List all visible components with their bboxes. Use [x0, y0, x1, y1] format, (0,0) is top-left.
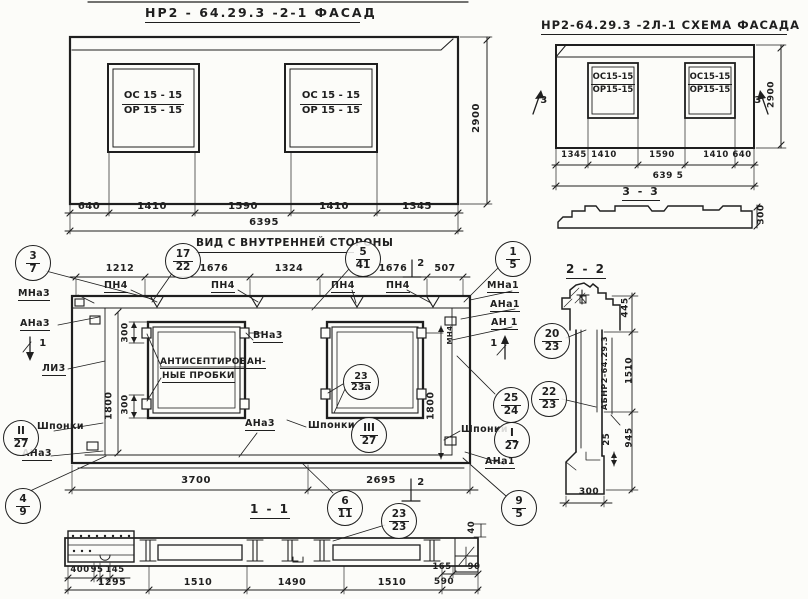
window-type-bottom: ОР 15 - 15 — [302, 105, 360, 118]
dim-945: 945 — [626, 418, 635, 458]
mark-pn4: ПН4 — [386, 281, 410, 293]
dim-1510: 1510 — [180, 578, 216, 588]
mark-pn4: ПН4 — [211, 281, 235, 293]
facade-title: НР2 - 64.29.3 -2-1 ФАСАД — [145, 6, 360, 23]
facade-dim: 1410 — [132, 202, 172, 212]
drawing-sheet: НР2 - 64.29.3 -2-1 ФАСАД ОС 15 - 15 ОР 1… — [0, 0, 808, 599]
schema-dim: 1590 — [646, 151, 678, 160]
callout-top: 22 — [539, 387, 560, 399]
schema-dim-height: 2900 — [768, 73, 777, 117]
interior-dim-bottom: 2695 — [361, 476, 401, 486]
callout-bottom: 11 — [338, 509, 353, 520]
dim-1800-right: 1800 — [426, 384, 436, 428]
callout-bottom: 41 — [356, 260, 371, 271]
mark-mna1: МНа1 — [487, 281, 519, 293]
dim-590: 590 — [428, 578, 460, 587]
interior-dim-top: 1212 — [100, 264, 140, 274]
schema-window-1-label: ОС15-15 ОР15-15 — [590, 72, 636, 95]
callout-top: II — [14, 426, 28, 438]
window-type-bottom: ОР15-15 — [593, 85, 634, 96]
window-type-top: ОС15-15 — [591, 72, 636, 85]
callout-bottom: 5 — [509, 260, 516, 271]
section-1-1-title: 1 - 1 — [250, 503, 290, 519]
callout-bottom: 27 — [14, 439, 29, 450]
dim-95: 95 — [89, 566, 105, 575]
callout-17-22: 17 22 — [165, 243, 201, 279]
callout-4-9: 4 9 — [5, 488, 41, 524]
dim-145: 145 — [104, 566, 126, 575]
window-type-top: ОС15-15 — [688, 72, 733, 85]
callout-6-11: 6 11 — [327, 490, 363, 526]
facade-window-2-label: ОС 15 - 15 ОР 15 - 15 — [293, 90, 369, 117]
callout-23-23: 23 23 — [381, 503, 417, 539]
section-flag-3-label: 3 — [538, 96, 550, 106]
callout-top: 5 — [356, 247, 369, 259]
window-type-top: ОС 15 - 15 — [300, 90, 362, 105]
antiseptic-note-line1: АНТИСЕПТИРОВАН- — [160, 358, 266, 369]
callout-bottom: 24 — [504, 406, 519, 417]
callout-23-23a: 23 23а — [343, 364, 379, 400]
stamp-label: АБНР2-64.29.3 — [601, 331, 609, 415]
section-2-2-title: 2 - 2 — [566, 263, 606, 279]
section-3-3 — [558, 204, 760, 229]
callout-1-5: 1 5 — [495, 241, 531, 277]
callout-top: 23 — [389, 509, 410, 521]
section-flag-1-label: 1 — [488, 339, 500, 349]
facade-dim: 1345 — [397, 202, 437, 212]
schema-window-2-label: ОС15-15 ОР15-15 — [687, 72, 733, 95]
callout-3-7: 3 7 — [15, 245, 51, 281]
callout-III-27: III 27 — [351, 417, 387, 453]
callout-top: 17 — [173, 249, 194, 261]
facade-window-1-label: ОС 15 - 15 ОР 15 - 15 — [115, 90, 191, 117]
label-shponki: Шпонки — [37, 422, 84, 433]
dim-300: 300 — [122, 315, 131, 351]
window-type-bottom: ОР15-15 — [690, 85, 731, 96]
callout-top: 6 — [338, 496, 351, 508]
mark-an1: АН 1 — [491, 318, 518, 330]
facade-dim-total: 6395 — [244, 218, 284, 228]
dim-1800-left: 1800 — [104, 384, 114, 428]
callout-top: I — [507, 428, 517, 440]
callout-bottom: 5 — [515, 509, 522, 520]
callout-bottom: 23 — [545, 342, 560, 353]
dim-1490: 1490 — [274, 578, 310, 588]
interior-title: ВИД С ВНУТРЕННЕЙ СТОРОНЫ — [196, 238, 354, 253]
callout-9-5: 9 5 — [501, 490, 537, 526]
mark-ana1: АНа1 — [490, 300, 520, 312]
window-type-top: ОС 15 - 15 — [122, 90, 184, 105]
section-flag-2-label: 2 — [415, 478, 427, 488]
section-flag-1-label: 1 — [37, 339, 49, 349]
dim-25: 25 — [603, 424, 612, 454]
facade-dim: 1410 — [314, 202, 354, 212]
dim-1295: 1295 — [94, 578, 130, 588]
dim-300: 300 — [122, 387, 131, 423]
dim-1510: 1510 — [626, 351, 635, 391]
mark-pn4: ПН4 — [104, 281, 128, 293]
callout-5-41: 5 41 — [345, 241, 381, 277]
section-3-3-height: 300 — [758, 197, 767, 233]
callout-top: 25 — [501, 393, 522, 405]
section-flag-3-label: 3 — [752, 96, 764, 106]
mark-pn4: ПН4 — [331, 281, 355, 293]
dim-1510: 1510 — [374, 578, 410, 588]
schema-title: НР2-64.29.3 -2Л-1 СХЕМА ФАСАДА — [541, 19, 787, 35]
callout-bottom: 23 — [392, 522, 407, 533]
callout-II-27: II 27 — [3, 420, 39, 456]
callout-bottom: 9 — [19, 507, 26, 518]
mark-vna3: ВНа3 — [253, 331, 283, 343]
callout-20-23: 20 23 — [534, 323, 570, 359]
callout-bottom: 23 — [542, 400, 557, 411]
callout-bottom: 27 — [505, 441, 520, 452]
callout-top: III — [360, 423, 378, 435]
mark-ana3: АНа3 — [20, 319, 50, 331]
facade-dim: 640 — [69, 202, 109, 212]
callout-top: 20 — [542, 329, 563, 341]
callout-bottom: 22 — [176, 262, 191, 273]
formwork-profiles — [140, 540, 440, 561]
schema-dim: 1410 — [588, 151, 620, 160]
callout-25-24: 25 24 — [493, 387, 529, 423]
dim-40: 40 — [468, 512, 477, 542]
section-flag-2-label: 2 — [415, 259, 427, 269]
interior-dim-top: 507 — [430, 264, 460, 274]
window-type-bottom: ОР 15 - 15 — [124, 105, 182, 118]
schema-dim: 1345 — [558, 151, 590, 160]
dim-165: 165 — [429, 563, 455, 572]
callout-top: 4 — [16, 494, 29, 506]
callout-top: 9 — [512, 496, 525, 508]
mark-li3: ЛИ3 — [42, 364, 66, 376]
facade-dim-height: 2900 — [472, 96, 482, 140]
callout-22-23: 22 23 — [531, 381, 567, 417]
antiseptic-note-line2: НЫЕ ПРОБКИ — [162, 372, 235, 383]
dim-90: 90 — [464, 563, 484, 572]
mark-mn4: МН4 — [447, 320, 455, 350]
interior-panel — [65, 274, 478, 494]
dim-445: 445 — [622, 288, 631, 328]
mark-mna3: МНа3 — [18, 289, 50, 301]
callout-bottom: 7 — [29, 264, 36, 275]
callout-I-27: I 27 — [494, 422, 530, 458]
mark-ana1: АНа1 — [485, 457, 515, 469]
mark-ana3: АНа3 — [245, 419, 275, 431]
facade-dim: 1590 — [223, 202, 263, 212]
schema-panel — [533, 45, 786, 190]
interior-dim-bottom: 3700 — [176, 476, 216, 486]
callout-top: 3 — [26, 251, 39, 263]
callout-bottom: 23а — [351, 383, 371, 393]
schema-dim-total: 639 5 — [650, 172, 686, 181]
callout-bottom: 27 — [362, 436, 377, 447]
label-shponki: Шпонки — [308, 421, 355, 432]
dim-300: 300 — [570, 488, 608, 497]
callout-top: 23 — [351, 372, 370, 383]
schema-dim: 640 — [728, 151, 756, 160]
section-3-3-title: 3 - 3 — [622, 186, 660, 201]
interior-dim-top: 1324 — [269, 264, 309, 274]
callout-top: 1 — [506, 247, 519, 259]
